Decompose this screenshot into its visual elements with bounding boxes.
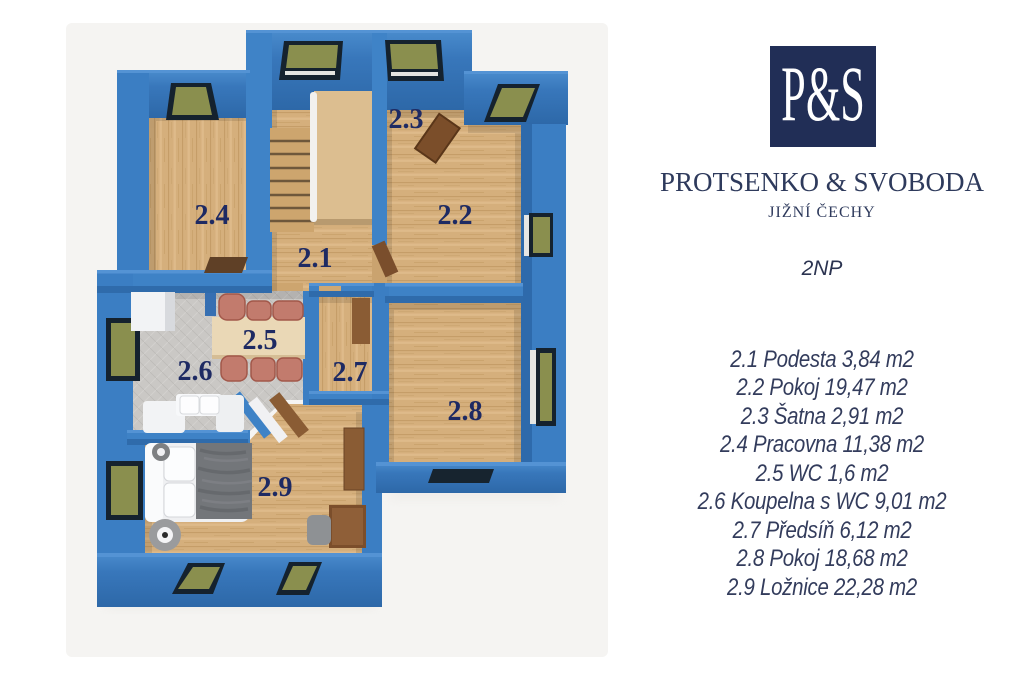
svg-text:2.3: 2.3 [389,104,424,135]
svg-text:2.7: 2.7 [333,357,368,388]
svg-text:2.9: 2.9 [258,472,293,503]
svg-text:2.5: 2.5 [243,325,278,356]
svg-text:2.6: 2.6 [178,356,213,387]
svg-text:2.1: 2.1 [298,243,333,274]
svg-text:2.2: 2.2 [438,200,473,231]
svg-text:2.4: 2.4 [195,200,230,231]
svg-text:2.8: 2.8 [448,396,483,427]
